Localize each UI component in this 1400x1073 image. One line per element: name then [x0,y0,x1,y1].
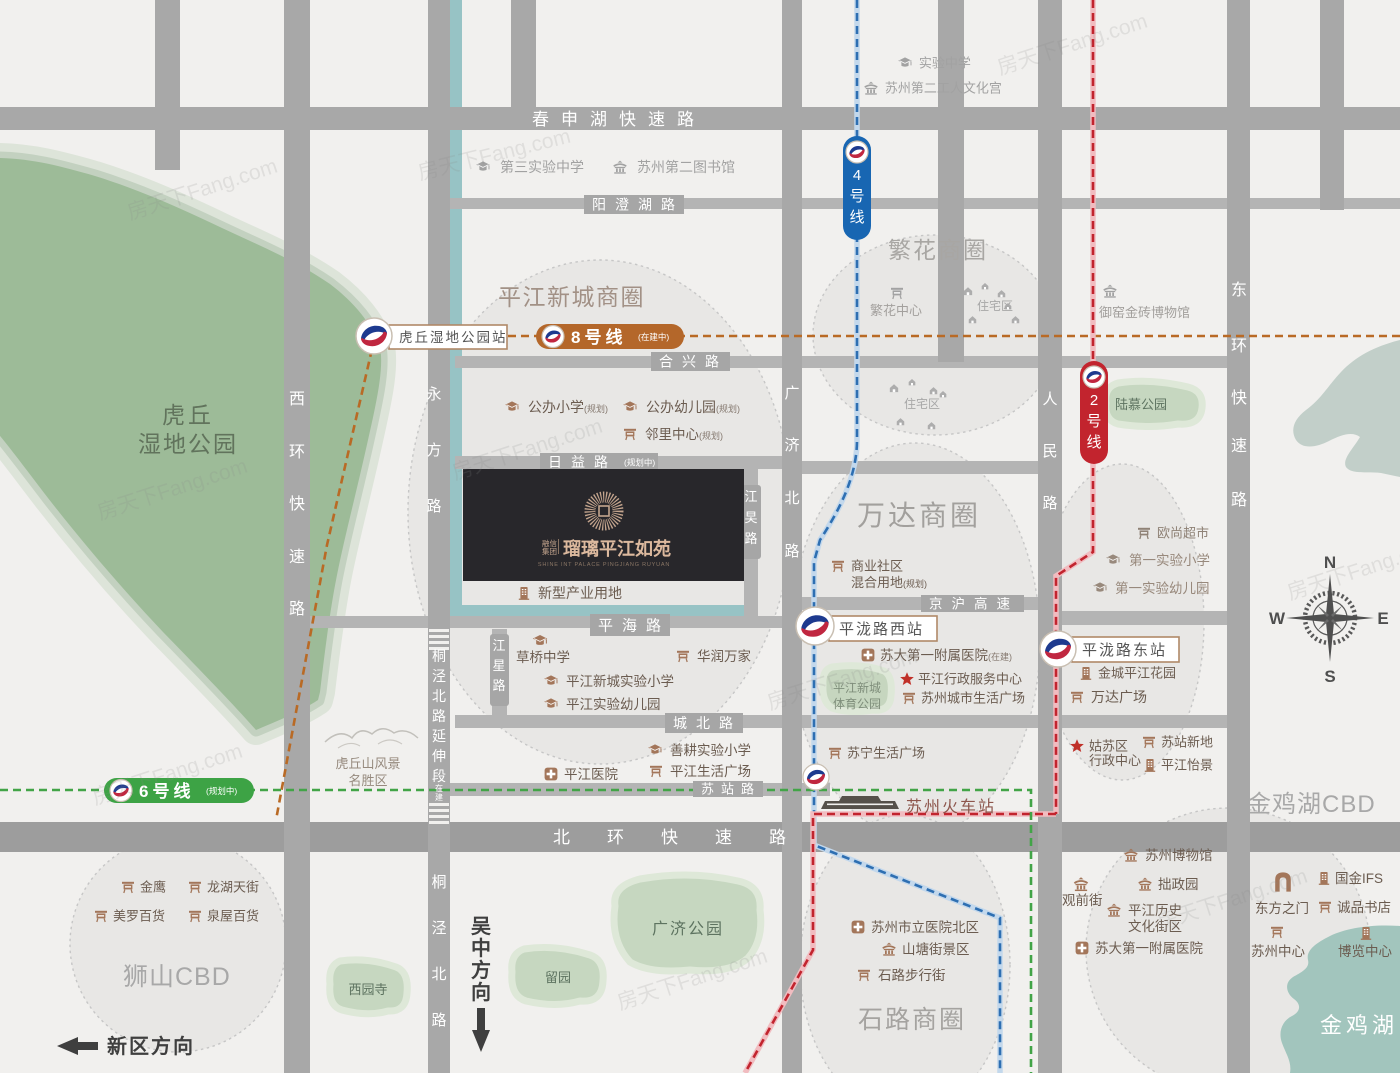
svg-text:北环快速路: 北环快速路 [553,828,823,847]
svg-text:新型产业用地: 新型产业用地 [538,585,622,601]
svg-text:苏州第二图书馆: 苏州第二图书馆 [637,159,735,175]
svg-text:京沪高速: 京沪高速 [929,595,1019,611]
svg-text:诚品书店: 诚品书店 [1337,900,1391,915]
svg-text:博览中心: 博览中心 [1338,943,1392,959]
svg-text:集团: 集团 [542,546,557,556]
svg-text:平江实验幼儿园: 平江实验幼儿园 [566,697,661,712]
svg-text:第一实验幼儿园: 第一实验幼儿园 [1115,580,1210,596]
svg-text:狮山CBD: 狮山CBD [123,963,231,991]
svg-text:万达商圈: 万达商圈 [857,500,981,531]
svg-text:华润万家: 华润万家 [697,648,751,664]
svg-text:日益路: 日益路 [548,454,617,470]
svg-text:城北路: 城北路 [673,715,742,731]
svg-text:石路商圈: 石路商圈 [858,1006,966,1034]
svg-text:苏大第一附属医院: 苏大第一附属医院 [1095,940,1203,956]
svg-text:(规划中): (规划中) [624,458,655,468]
svg-text:拙政园: 拙政园 [1158,877,1199,892]
svg-text:苏站新地: 苏站新地 [1161,735,1213,750]
svg-text:美罗百货: 美罗百货 [113,909,165,924]
svg-text:新区方向: 新区方向 [107,1034,195,1058]
svg-text:行政中心: 行政中心 [1089,753,1141,768]
svg-text:姑苏区: 姑苏区 [1089,739,1128,754]
svg-text:第一实验小学: 第一实验小学 [1129,552,1210,568]
svg-text:平江新城商圈: 平江新城商圈 [498,284,645,310]
svg-text:E: E [1377,609,1388,628]
svg-text:(在建中): (在建中) [638,332,669,342]
svg-text:在建: 在建 [435,783,443,802]
svg-text:繁花中心: 繁花中心 [870,303,922,318]
svg-text:留园: 留园 [545,970,571,985]
svg-text:金鹰: 金鹰 [140,880,166,895]
svg-text:草桥中学: 草桥中学 [516,650,570,665]
svg-text:山塘街景区: 山塘街景区 [902,942,970,957]
svg-text:万达广场: 万达广场 [1091,689,1147,705]
svg-text:平江医院: 平江医院 [564,767,618,782]
svg-text:苏州城市生活广场: 苏州城市生活广场 [921,691,1025,706]
svg-text:平泷路东站: 平泷路东站 [1082,642,1167,659]
svg-text:平泷路西站: 平泷路西站 [839,621,924,638]
svg-text:S: S [1324,667,1335,686]
svg-text:虎丘: 虎丘 [162,402,214,428]
svg-text:欧尚超市: 欧尚超市 [1157,526,1209,541]
svg-text:陆慕公园: 陆慕公园 [1115,397,1167,412]
svg-text:苏宁生活广场: 苏宁生活广场 [847,746,925,761]
svg-text:平江新城实验小学: 平江新城实验小学 [566,674,674,689]
svg-text:石路步行街: 石路步行街 [878,968,946,983]
svg-text:苏州博物馆: 苏州博物馆 [1145,847,1213,863]
svg-text:商业社区: 商业社区 [851,559,903,574]
svg-text:体育公园: 体育公园 [833,696,881,711]
svg-text:实验中学: 实验中学 [919,56,971,71]
svg-text:苏州火车站: 苏州火车站 [906,798,996,816]
svg-text:苏州第二工人文化宫: 苏州第二工人文化宫 [885,81,1002,96]
svg-text:苏站路: 苏站路 [701,782,761,797]
svg-text:金鸡湖: 金鸡湖 [1320,1013,1398,1038]
svg-text:SHINE INT PALACE PINGJIANG RUY: SHINE INT PALACE PINGJIANG RUYUAN [538,562,670,568]
svg-text:瑠璃平江如苑: 瑠璃平江如苑 [563,538,671,559]
svg-text:阳澄湖路: 阳澄湖路 [592,197,684,213]
svg-text:8号线: 8号线 [571,327,626,347]
svg-text:龙湖天街: 龙湖天街 [207,880,259,895]
svg-text:泉屋百货: 泉屋百货 [207,909,259,924]
svg-text:苏州中心: 苏州中心 [1251,944,1305,959]
svg-text:(规划中): (规划中) [206,786,237,796]
svg-text:平江生活广场: 平江生活广场 [670,764,751,779]
svg-text:虎丘湿地公园站: 虎丘湿地公园站 [399,330,508,345]
svg-text:国金IFS: 国金IFS [1335,871,1383,886]
svg-text:名胜区: 名胜区 [348,773,387,788]
svg-text:江星路: 江星路 [492,638,505,693]
svg-text:江旲路: 江旲路 [744,489,757,546]
svg-text:金鸡湖CBD: 金鸡湖CBD [1247,791,1376,818]
svg-text:苏州市立医院北区: 苏州市立医院北区 [871,919,979,935]
svg-text:住宅区: 住宅区 [904,396,940,411]
svg-text:平海路: 平海路 [598,617,670,634]
svg-text:金城平江花园: 金城平江花园 [1098,666,1176,681]
svg-text:西园寺: 西园寺 [348,982,387,997]
svg-text:平江怡景: 平江怡景 [1161,758,1213,773]
svg-text:平江行政服务中心: 平江行政服务中心 [918,672,1022,687]
svg-text:W: W [1269,609,1286,628]
svg-text:广济公园: 广济公园 [652,920,724,938]
svg-text:吴中方向: 吴中方向 [471,915,491,1004]
svg-text:东方之门: 东方之门 [1255,901,1309,916]
svg-text:住宅区: 住宅区 [977,298,1013,313]
svg-text:湿地公园: 湿地公园 [138,431,238,457]
svg-text:御窑金砖博物馆: 御窑金砖博物馆 [1099,305,1190,320]
svg-text:繁花商圈: 繁花商圈 [888,237,988,263]
svg-text:合兴路: 合兴路 [659,354,728,370]
svg-text:虎丘山风景: 虎丘山风景 [335,756,400,771]
svg-text:善耕实验小学: 善耕实验小学 [670,742,751,758]
svg-text:桐泾北路延伸段: 桐泾北路延伸段 [432,648,446,784]
svg-text:观前街: 观前街 [1062,892,1103,908]
